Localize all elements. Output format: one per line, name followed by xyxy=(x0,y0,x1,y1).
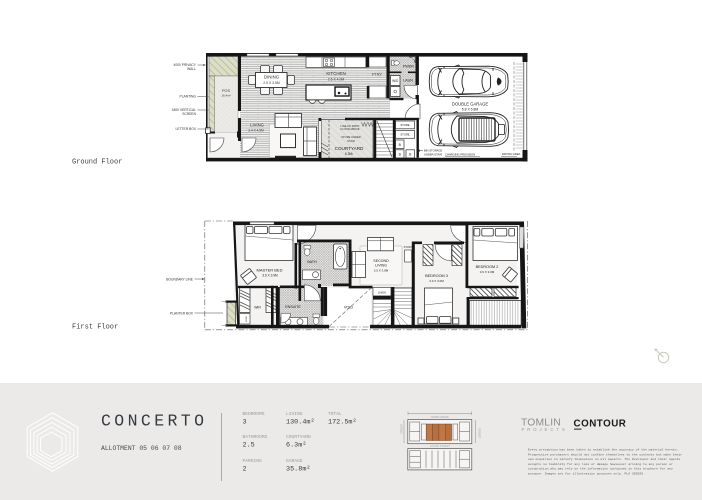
svg-text:2: 2 xyxy=(243,466,247,474)
svg-text:STUDY: STUDY xyxy=(404,245,413,249)
svg-text:6.3M²: 6.3M² xyxy=(345,152,353,156)
svg-text:own enquiries to satisfy thems: own enquiries to satisfy themselves on a… xyxy=(528,457,680,461)
svg-text:UNDER STAIR: UNDER STAIR xyxy=(424,153,442,157)
svg-text:3.6 X 3.0M: 3.6 X 3.0M xyxy=(480,270,495,274)
svg-text:WIR: WIR xyxy=(254,306,261,310)
svg-text:KITCHEN: KITCHEN xyxy=(326,71,345,76)
svg-text:LETTER BOX: LETTER BOX xyxy=(175,127,196,131)
svg-text:DINING: DINING xyxy=(264,75,280,80)
svg-text:130.4m²: 130.4m² xyxy=(286,419,315,427)
svg-text:SOUTH STREET: SOUTH STREET xyxy=(430,444,450,448)
svg-text:LIVING: LIVING xyxy=(286,411,303,417)
svg-text:35.8m²: 35.8m² xyxy=(286,466,310,474)
svg-text:BIN STORAGE: BIN STORAGE xyxy=(424,149,443,153)
svg-text:3.4 X 4.5M: 3.4 X 4.5M xyxy=(248,129,264,133)
svg-text:172.5m²: 172.5m² xyxy=(328,419,357,427)
svg-text:STORE UNDER: STORE UNDER xyxy=(341,135,361,139)
svg-text:CHARGING PROVISION: CHARGING PROVISION xyxy=(445,153,475,157)
svg-text:3.3 X 3.0M: 3.3 X 3.0M xyxy=(429,279,444,283)
svg-text:TOTAL: TOTAL xyxy=(328,411,342,417)
svg-text:PLANTER BOX: PLANTER BOX xyxy=(170,312,194,316)
svg-text:VOID: VOID xyxy=(344,306,354,310)
svg-text:Prospective purchasers should: Prospective purchasers should not confin… xyxy=(528,452,682,456)
svg-text:PTRY: PTRY xyxy=(372,73,383,77)
svg-text:FLOOR ABOVE: FLOOR ABOVE xyxy=(340,127,359,131)
svg-text:GARAGE: GARAGE xyxy=(286,458,303,464)
svg-text:Ground Floor: Ground Floor xyxy=(72,159,122,167)
svg-text:BEDROOM 2: BEDROOM 2 xyxy=(476,265,499,269)
svg-text:corporation who may rely on th: corporation who may rely on the informat… xyxy=(528,467,673,471)
svg-text:accepts no liability for any l: accepts no liability for any loss or dam… xyxy=(528,462,673,466)
svg-text:DRYING AREA: DRYING AREA xyxy=(502,152,521,156)
svg-text:DOUBLE GARAGE: DOUBLE GARAGE xyxy=(452,102,489,107)
svg-text:First Floor: First Floor xyxy=(72,324,118,332)
svg-text:BEDROOM 3: BEDROOM 3 xyxy=(425,274,448,278)
svg-text:2.5: 2.5 xyxy=(243,442,255,450)
svg-text:Every precaution has been take: Every precaution has been taken to estab… xyxy=(528,448,679,452)
svg-text:MASTER BED: MASTER BED xyxy=(256,268,282,273)
svg-text:PWDR: PWDR xyxy=(403,65,414,69)
svg-text:PLANTING: PLANTING xyxy=(180,95,197,99)
svg-text:NORTH ROAD: NORTH ROAD xyxy=(431,415,449,419)
svg-text:16.4m²: 16.4m² xyxy=(221,94,230,98)
svg-text:PARKING: PARKING xyxy=(243,458,263,464)
svg-text:ENSUITE: ENSUITE xyxy=(285,305,301,309)
svg-text:LINEN: LINEN xyxy=(378,290,386,294)
svg-text:LIVING: LIVING xyxy=(250,123,264,128)
svg-text:COURTYARD: COURTYARD xyxy=(335,146,364,151)
svg-text:5.8 X 5.8M: 5.8 X 5.8M xyxy=(462,108,479,112)
svg-text:STORE: STORE xyxy=(400,123,409,127)
svg-text:WALL: WALL xyxy=(187,67,196,71)
svg-text:POS: POS xyxy=(222,89,230,93)
svg-text:3.6 X 3.9M: 3.6 X 3.9M xyxy=(262,274,278,278)
svg-text:6.3m²: 6.3m² xyxy=(286,442,306,450)
svg-text:STORE: STORE xyxy=(400,133,409,137)
svg-text:STREET: STREET xyxy=(400,423,404,434)
svg-text:W/D: W/D xyxy=(392,79,399,83)
svg-text:STREET: STREET xyxy=(478,428,482,439)
svg-text:COURTYARD: COURTYARD xyxy=(286,434,311,440)
svg-text:BEDROOMS: BEDROOMS xyxy=(243,411,265,417)
svg-text:BATH: BATH xyxy=(307,260,317,264)
svg-text:PROJECTS: PROJECTS xyxy=(522,427,568,432)
svg-text:CONTOUR: CONTOUR xyxy=(574,419,627,430)
svg-text:BOUNDARY LINE: BOUNDARY LINE xyxy=(166,278,194,282)
svg-text:purpose. Images are for illust: purpose. Images are for illustration pur… xyxy=(528,472,645,476)
svg-text:3.5 X 3.8M: 3.5 X 3.8M xyxy=(374,268,389,272)
svg-text:BATHROOMS: BATHROOMS xyxy=(243,434,268,440)
svg-text:LINE OF FIRST: LINE OF FIRST xyxy=(341,124,360,128)
svg-text:CONCERTO: CONCERTO xyxy=(101,412,207,431)
svg-text:STAIR: STAIR xyxy=(347,139,355,143)
svg-text:3: 3 xyxy=(243,419,247,427)
svg-text:ROBE: ROBE xyxy=(246,315,248,322)
svg-text:ALLOTMENT 05 06 07 08: ALLOTMENT 05 06 07 08 xyxy=(101,445,182,452)
svg-text:2.5 X 3.5M: 2.5 X 3.5M xyxy=(263,81,280,85)
svg-text:LIVING: LIVING xyxy=(375,263,387,267)
svg-text:LAUN: LAUN xyxy=(403,79,413,83)
svg-text:2.5 X 4.0M: 2.5 X 4.0M xyxy=(328,78,345,82)
svg-text:SCREEN: SCREEN xyxy=(182,112,196,116)
